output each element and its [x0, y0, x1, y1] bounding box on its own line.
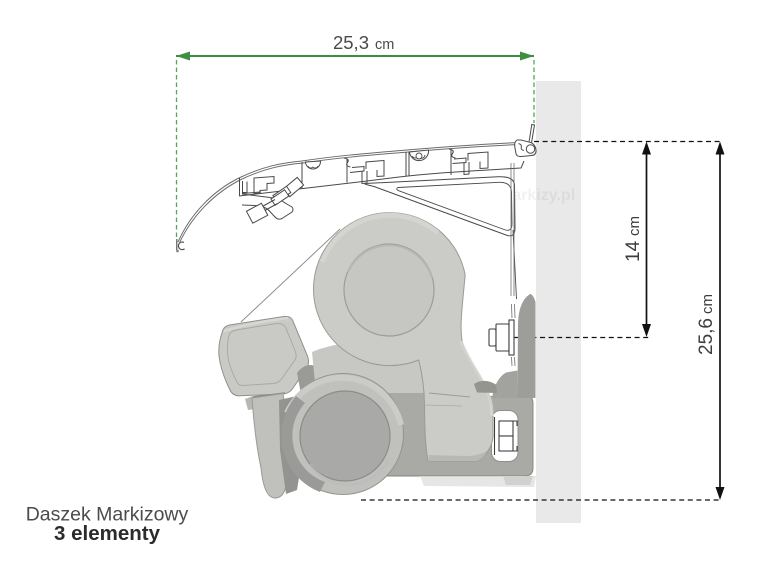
- svg-text:3 elementy: 3 elementy: [54, 522, 161, 545]
- svg-text:25,3: 25,3: [333, 32, 369, 53]
- svg-text:cm: cm: [699, 294, 716, 314]
- svg-text:14: 14: [623, 240, 644, 262]
- svg-text:25,6: 25,6: [696, 318, 717, 355]
- svg-text:cm: cm: [626, 216, 643, 236]
- svg-text:cm: cm: [375, 37, 394, 53]
